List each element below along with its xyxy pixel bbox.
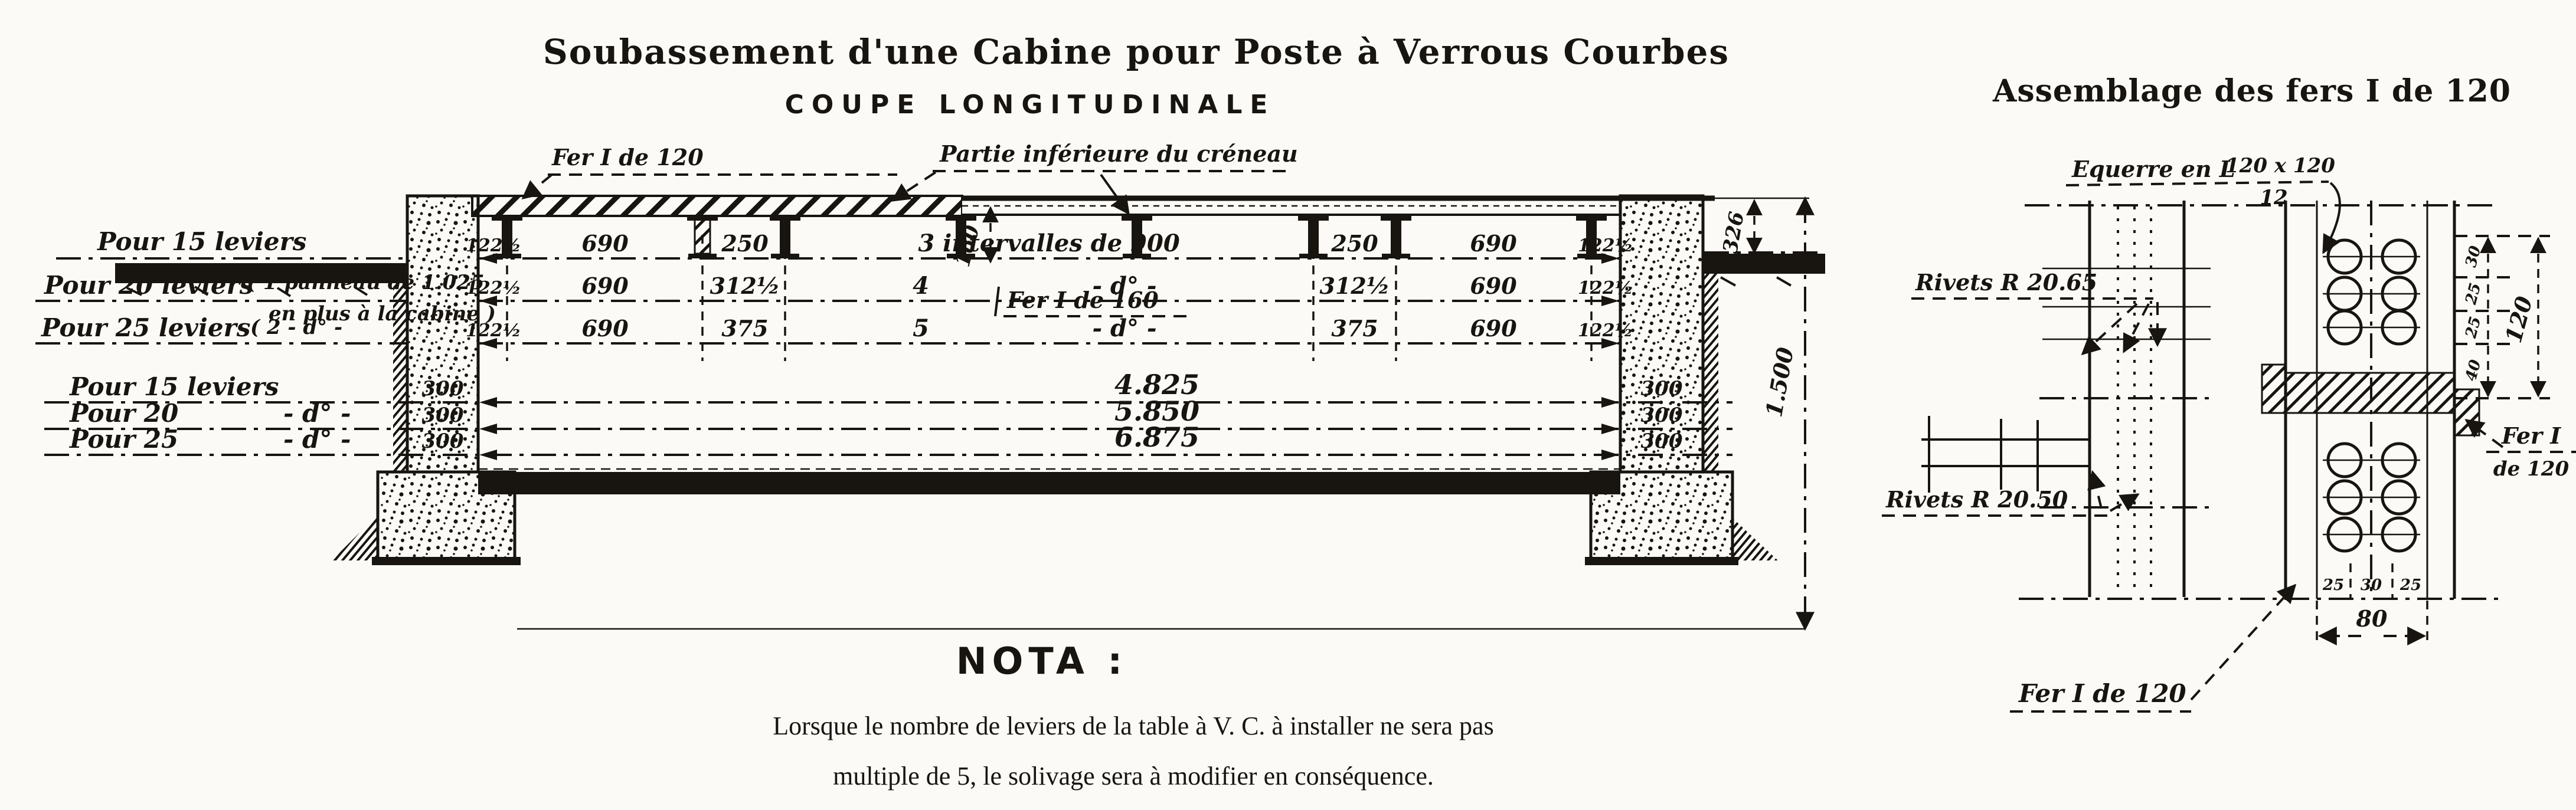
technical-drawing: Soubassement d'une Cabine pour Poste à V…: [0, 0, 2576, 810]
fer-bottom-annotation: Fer I de 120: [2010, 585, 2295, 711]
equerre-dims: 120 x 120: [2225, 154, 2335, 178]
rivets-top-annotation: Rivets R 20.65: [1911, 269, 2157, 354]
chain-dim: 40: [2462, 358, 2485, 383]
width-total: 80: [2356, 605, 2388, 632]
dim-cell: 312½: [710, 273, 780, 299]
rivet-holes-lower: [2323, 444, 2420, 551]
fer-bottom-label: Fer I de 120: [2018, 679, 2186, 708]
dim-cell: - d° -: [1092, 272, 1156, 300]
nota-heading: NOTA :: [956, 640, 1127, 683]
dim-cell: 312½: [1320, 273, 1390, 299]
dim-cell: 122½: [1578, 235, 1633, 256]
dim-cell: 690: [1470, 315, 1517, 342]
dim-cell: 4: [913, 272, 929, 300]
assembly-detail: 30 25 25 40 120 25 30 25 80 Equerre en L…: [1882, 154, 2576, 711]
nota-line2: multiple de 5, le solivage sera à modifi…: [833, 762, 1434, 791]
dim-cell: 5: [913, 314, 929, 342]
dim-326: 326: [1715, 198, 1809, 255]
rivets-bottom-label: Rivets R 20.50: [1885, 486, 2068, 513]
lower-row-25: Pour 25 - d° - 300 300 6.875: [44, 421, 1732, 460]
width-cell: 30: [2361, 576, 2382, 594]
row3-note: ( 2 - d° -: [250, 316, 342, 339]
nota-section: NOTA : Lorsque le nombre de leviers de l…: [773, 640, 1493, 791]
dim-cell: 690: [1470, 273, 1517, 299]
page-title: Soubassement d'une Cabine pour Poste à V…: [543, 32, 1730, 72]
dim-cell: 690: [581, 230, 629, 257]
bottom-slab: [478, 469, 1620, 494]
lower-row2-label: Pour 20: [69, 399, 178, 428]
rivets-bottom-annotation: Rivets R 20.50: [1882, 472, 2138, 516]
dim-300-left: 300: [422, 404, 464, 427]
lower-row1-label: Pour 15 leviers: [69, 372, 279, 401]
assembly-title: Assemblage des fers I de 120: [1992, 73, 2511, 109]
dim-cell: 690: [581, 315, 629, 342]
dim-cell: 122½: [1578, 320, 1633, 341]
row3-label: Pour 25 leviers: [41, 313, 250, 342]
dim-300-right: 300: [1641, 429, 1683, 453]
dim-326-value: 326: [1718, 210, 1749, 255]
row2-label: Pour 20 leviers: [44, 271, 253, 300]
lower-row2-ditto: - d° -: [283, 399, 351, 428]
dim-cell: 375: [721, 315, 768, 342]
page-subtitle: COUPE LONGITUDINALE: [785, 90, 1276, 120]
dim-cell: - d° -: [1092, 314, 1156, 342]
equerre-label: Equerre en L: [2071, 156, 2235, 182]
lower-dimension-rows: Pour 15 leviers 300 300 4.825 Pour 20 - …: [44, 369, 1732, 460]
dim-cell: 250: [1331, 230, 1378, 257]
row-25-leviers: Pour 25 leviers ( 2 - d° - 122½ 690 375 …: [35, 313, 1633, 349]
chain-dim: 25: [2462, 315, 2485, 341]
equerre-annotation: Equerre en L 120 x 120 12: [2066, 154, 2340, 252]
chain-dim: 25: [2462, 281, 2485, 307]
dim-1500-value: 1.500: [1760, 345, 1799, 419]
ground-band-right: [1704, 254, 1825, 286]
dim-300-right: 300: [1641, 404, 1683, 427]
fer-side-annotation: Fer I de 120: [2466, 420, 2576, 481]
rivets-top-label: Rivets R 20.65: [1915, 269, 2097, 296]
dim-cell: 690: [581, 273, 629, 299]
fer-side-label-1: Fer I: [2501, 422, 2561, 449]
dim-300-right: 300: [1641, 377, 1683, 401]
main-section-drawing: Fer I de 120 Partie inférieure du crénea…: [35, 140, 1825, 629]
dim-cell: 122½: [466, 235, 521, 256]
partie-inferieure-label: Partie inférieure du créneau: [939, 140, 1298, 167]
chain-dim: 30: [2462, 244, 2485, 270]
upper-dimension-rows: Pour 15 leviers 122½ 690 250 3 intervall…: [35, 227, 1824, 361]
top-slab: [472, 196, 1715, 216]
dim-300-left: 300: [422, 429, 464, 453]
fer-120-label: Fer I de 120: [551, 144, 704, 170]
drawing-sheet: Soubassement d'une Cabine pour Poste à V…: [0, 0, 2576, 810]
dim-total: 6.875: [1114, 421, 1199, 453]
chain-dimensions: 30 25 25 40 120: [2454, 236, 2550, 398]
lower-row3-ditto: - d° -: [283, 425, 351, 454]
dim-cell: 375: [1331, 315, 1378, 342]
nota-line1: Lorsque le nombre de leviers de la table…: [773, 711, 1493, 740]
row2-note1: ( 1 panneau de 1.025: [247, 271, 485, 294]
equerre-denominator: 12: [2260, 186, 2287, 209]
dim-cell: 122½: [466, 320, 521, 341]
chain-total: 120: [2500, 293, 2538, 346]
fer-120-annotation: Fer I de 120: [523, 144, 897, 198]
dim-cell: 250: [721, 230, 769, 257]
width-cell: 25: [2400, 576, 2421, 594]
dim-cell: 122½: [1578, 278, 1633, 299]
dim-cell: 3 intervalles de 900: [918, 229, 1179, 257]
dim-300-left: 300: [422, 377, 464, 401]
dim-cell: 122½: [466, 278, 521, 299]
row1-label: Pour 15 leviers: [97, 227, 306, 256]
width-cell: 25: [2322, 576, 2344, 594]
fer-side-label-2: de 120: [2493, 457, 2570, 481]
assembly-face-view: [2262, 201, 2479, 599]
lower-row3-label: Pour 25: [69, 425, 178, 454]
row-15-leviers: Pour 15 leviers 122½ 690 250 3 intervall…: [56, 227, 1824, 264]
dim-cell: 690: [1470, 230, 1517, 257]
